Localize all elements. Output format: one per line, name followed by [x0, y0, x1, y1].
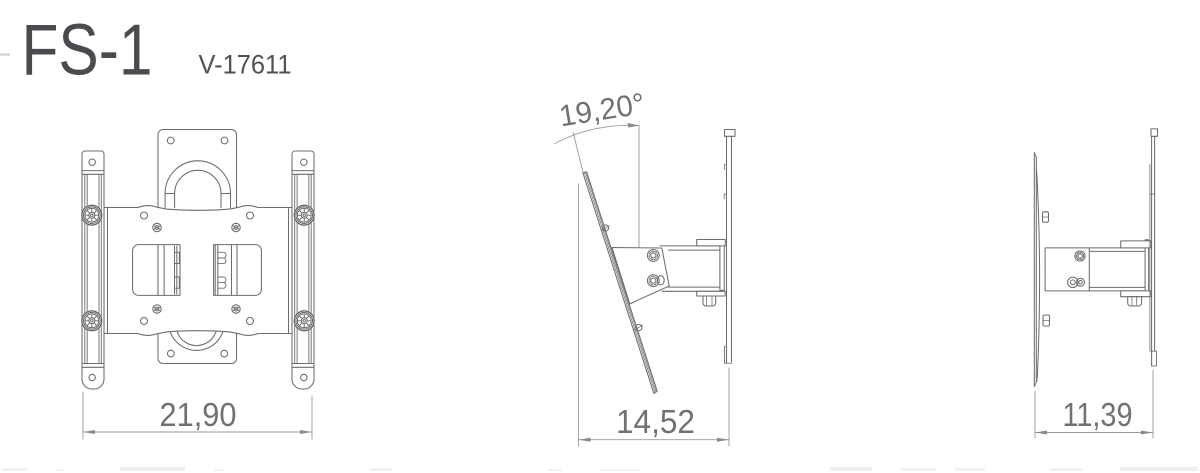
svg-text:14,52: 14,52	[616, 403, 695, 440]
svg-text:21,90: 21,90	[160, 396, 237, 433]
svg-text:FS-1: FS-1	[22, 11, 153, 91]
svg-text:11,39: 11,39	[1063, 396, 1133, 433]
svg-text:V-17611: V-17611	[199, 49, 292, 79]
